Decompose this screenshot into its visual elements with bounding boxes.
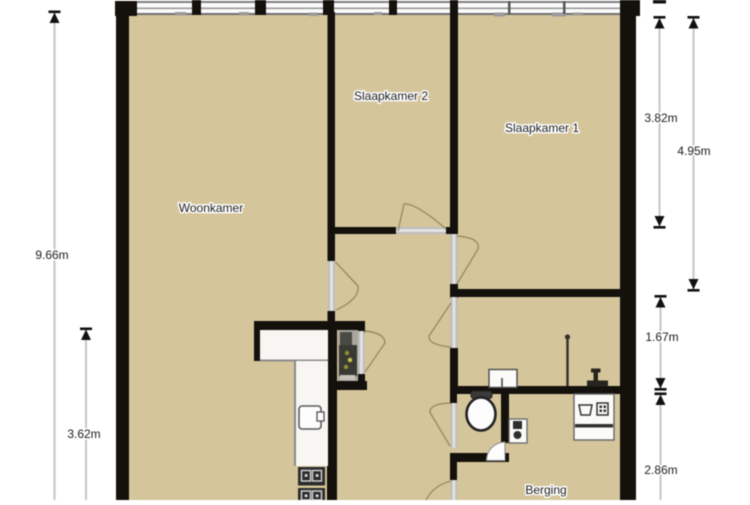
svg-text:3.62m: 3.62m [67, 427, 100, 441]
svg-text:3.82m: 3.82m [644, 111, 677, 125]
svg-text:Slaapkamer 1: Slaapkamer 1 [505, 121, 579, 135]
svg-text:4.95m: 4.95m [677, 144, 710, 158]
svg-text:1.67m: 1.67m [645, 330, 678, 344]
svg-text:Berging: Berging [525, 483, 566, 497]
svg-text:9.66m: 9.66m [35, 248, 68, 262]
svg-text:Slaapkamer 2: Slaapkamer 2 [354, 89, 428, 103]
svg-text:2.86m: 2.86m [644, 463, 677, 477]
svg-text:Woonkamer: Woonkamer [179, 201, 243, 215]
